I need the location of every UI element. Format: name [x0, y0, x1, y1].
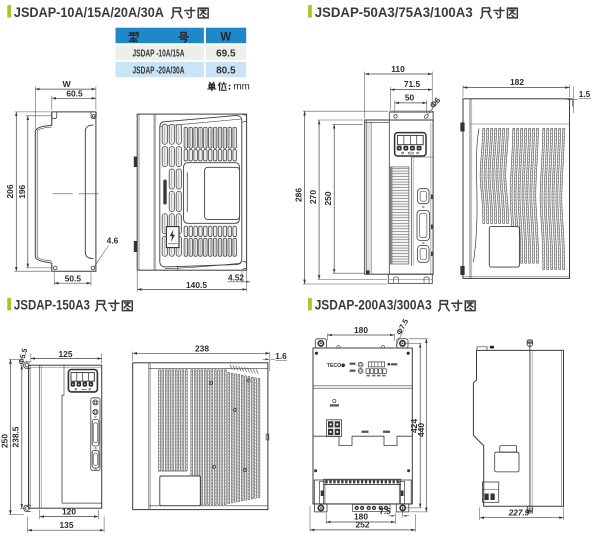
- svg-text:182: 182: [510, 77, 524, 87]
- svg-text:JSDAP-150A3: JSDAP-150A3: [14, 298, 90, 313]
- svg-text:JSDAP -10A/15A: JSDAP -10A/15A: [133, 49, 185, 60]
- svg-text:JSDAP -20A/30A: JSDAP -20A/30A: [133, 66, 185, 77]
- svg-text:252: 252: [356, 520, 370, 530]
- svg-text:7.5: 7.5: [379, 507, 391, 516]
- svg-text:Φ7.5: Φ7.5: [394, 317, 410, 337]
- svg-text:238.5: 238.5: [11, 426, 21, 447]
- svg-text:110: 110: [391, 64, 405, 74]
- svg-text:120: 120: [62, 507, 76, 517]
- svg-text:440: 440: [416, 423, 426, 437]
- svg-text:1.5: 1.5: [579, 90, 591, 99]
- svg-text:JSDAP-50A3/75A3/100A3: JSDAP-50A3/75A3/100A3: [315, 5, 473, 20]
- svg-text:69.5: 69.5: [216, 49, 236, 60]
- svg-text:196: 196: [17, 184, 27, 198]
- svg-text:JSDAP-10A/15A/20A/30A: JSDAP-10A/15A/20A/30A: [14, 5, 164, 20]
- svg-text:W: W: [220, 32, 231, 44]
- svg-text:250: 250: [0, 434, 9, 448]
- svg-text:mm: mm: [234, 81, 250, 92]
- svg-text:4.52: 4.52: [228, 273, 244, 282]
- svg-text:4.6: 4.6: [107, 236, 119, 246]
- svg-text:238: 238: [195, 344, 209, 354]
- svg-text:Φ6: Φ6: [428, 95, 442, 110]
- svg-text:80.5: 80.5: [216, 66, 236, 77]
- svg-text:135: 135: [60, 520, 74, 530]
- svg-text:1.6: 1.6: [275, 352, 287, 361]
- svg-text:JSDAP-200A3/300A3: JSDAP-200A3/300A3: [315, 298, 432, 313]
- svg-text:286: 286: [293, 188, 303, 202]
- svg-text:180: 180: [354, 325, 368, 335]
- svg-text:71.5: 71.5: [404, 79, 421, 89]
- svg-text:50: 50: [405, 93, 415, 103]
- svg-text:TECO: TECO: [327, 363, 341, 369]
- svg-text:50.5: 50.5: [65, 273, 82, 283]
- svg-text:206: 206: [5, 184, 15, 198]
- svg-text:140.5: 140.5: [186, 280, 207, 290]
- svg-text:250: 250: [323, 191, 333, 205]
- svg-text:60.5: 60.5: [66, 89, 83, 99]
- svg-text:270: 270: [308, 190, 318, 204]
- svg-text:125: 125: [59, 349, 73, 359]
- svg-text:W: W: [62, 79, 71, 89]
- svg-text:227.9: 227.9: [508, 508, 530, 517]
